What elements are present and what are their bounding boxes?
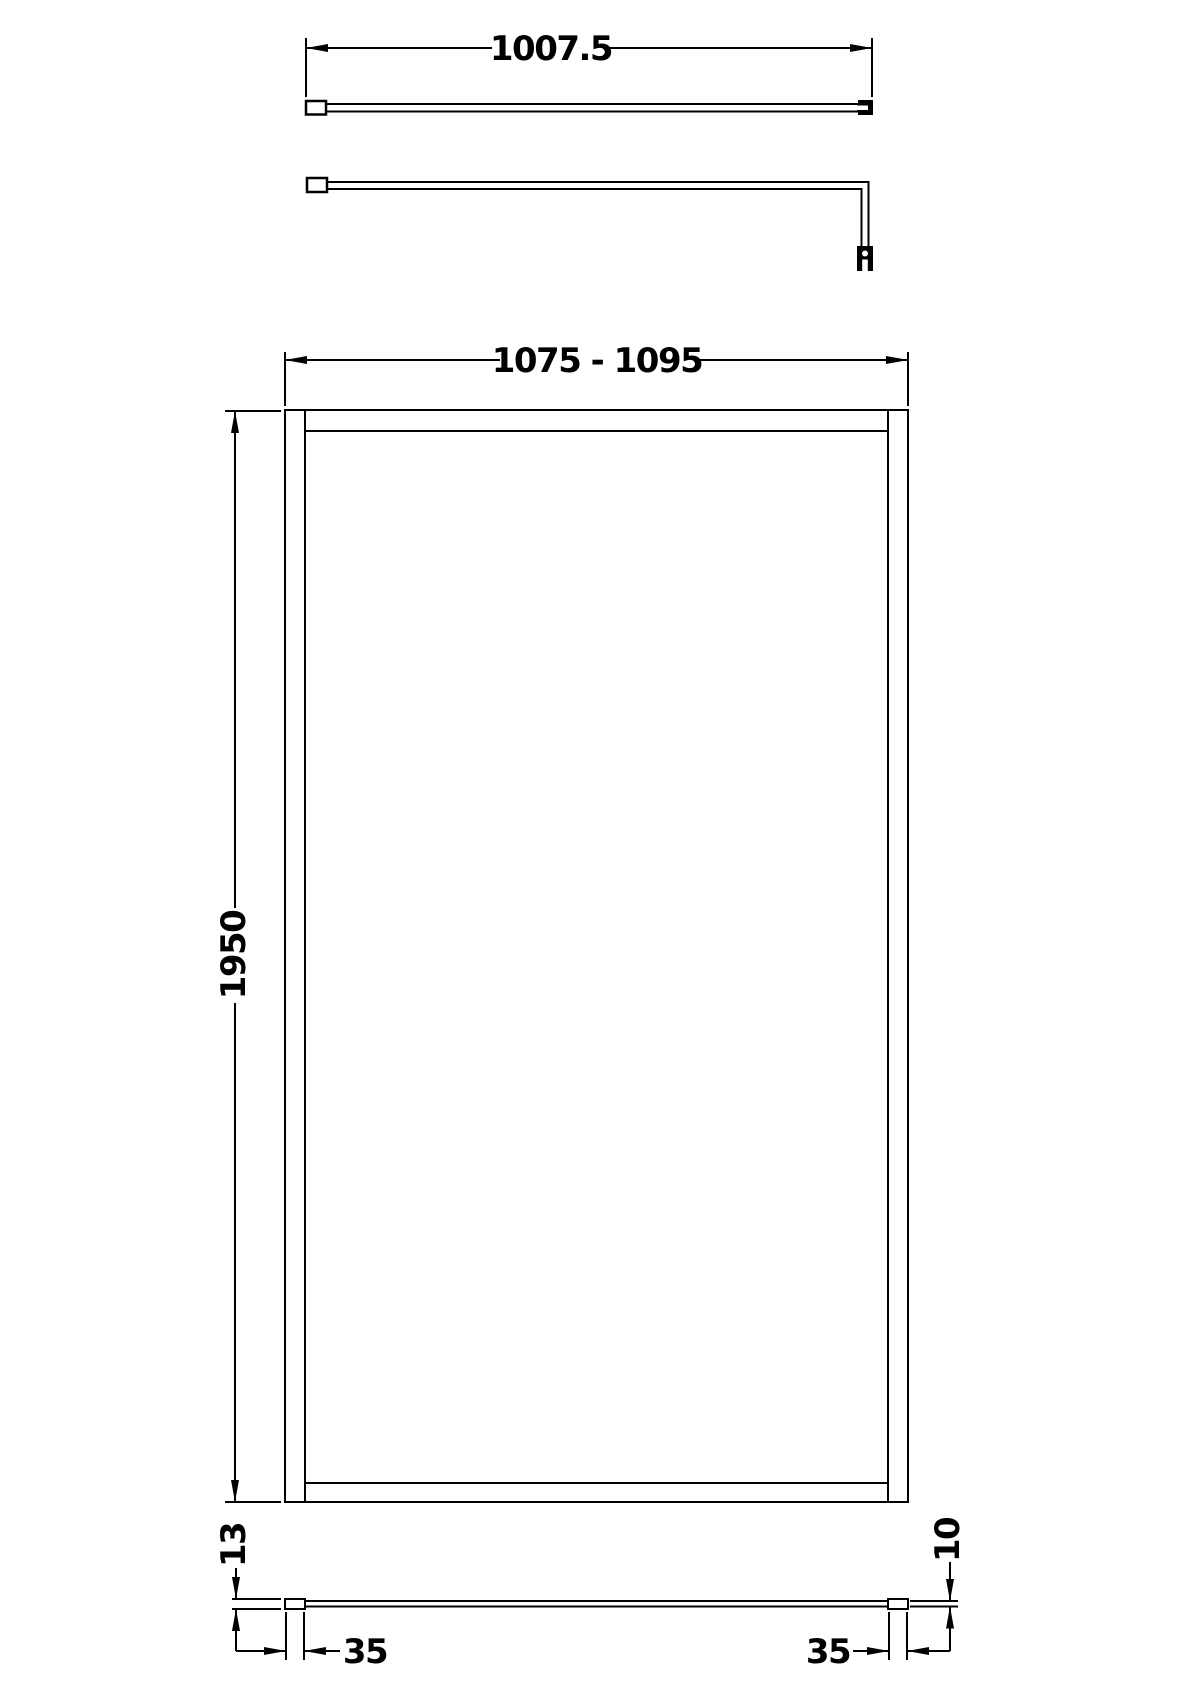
wall-bracket <box>306 101 326 115</box>
right-profile-width-label: 35 <box>806 1632 850 1672</box>
panel-height-dimension: 1950 <box>214 411 281 1502</box>
arrowhead-up <box>946 1607 954 1629</box>
glass-thickness-dimension: 10 <box>910 1517 968 1651</box>
bar-inner-edge <box>327 189 862 246</box>
arrowhead-right <box>264 1647 286 1655</box>
arrowhead-left <box>304 1647 326 1655</box>
profile-depth-label: 13 <box>214 1523 254 1567</box>
glass-clamp-screw-hole <box>862 251 868 257</box>
profile-depth-dimension: 13 <box>214 1523 281 1651</box>
glass-thickness-label: 10 <box>928 1517 968 1562</box>
right-wall-profile-section <box>888 1599 908 1609</box>
left-wall-profile-section <box>285 1599 305 1609</box>
bar-outer-edge <box>327 182 869 246</box>
right-profile-width-dimension: 35 <box>806 1612 950 1672</box>
support-bar-length-dimension: 1007.5 <box>306 29 872 97</box>
panel-outline <box>285 410 908 1502</box>
glass-panel-front-view <box>285 410 908 1502</box>
panel-width-dimension: 1075 - 1095 <box>285 341 908 406</box>
glass-section <box>305 1601 888 1607</box>
arrowhead-right <box>850 44 872 52</box>
arrowhead-right <box>867 1647 889 1655</box>
arrowhead-up <box>232 1609 240 1631</box>
arrowhead-left <box>907 1647 929 1655</box>
plan-view <box>285 1599 908 1609</box>
support-bar-top-view: 1007.5 <box>306 29 873 115</box>
arrowhead-bottom <box>231 1480 239 1502</box>
support-bar-angle-view <box>307 178 873 271</box>
arrowhead-left <box>306 44 328 52</box>
technical-drawing: 1007.5 1075 - 1095 <box>0 0 1200 1698</box>
left-profile-width-label: 35 <box>343 1632 387 1672</box>
wall-bracket <box>307 178 327 192</box>
support-bar-tube <box>326 104 858 112</box>
support-bar-length-label: 1007.5 <box>490 29 612 69</box>
arrowhead-right <box>886 356 908 364</box>
arrowhead-down <box>946 1579 954 1601</box>
glass-end-cap-slot <box>846 106 868 111</box>
left-profile-width-dimension: 35 <box>236 1612 387 1672</box>
arrowhead-left <box>285 356 307 364</box>
panel-width-label: 1075 - 1095 <box>492 341 703 381</box>
glass-clamp-slot <box>862 260 868 272</box>
arrowhead-down <box>232 1577 240 1599</box>
panel-height-label: 1950 <box>214 910 254 999</box>
arrowhead-top <box>231 411 239 433</box>
